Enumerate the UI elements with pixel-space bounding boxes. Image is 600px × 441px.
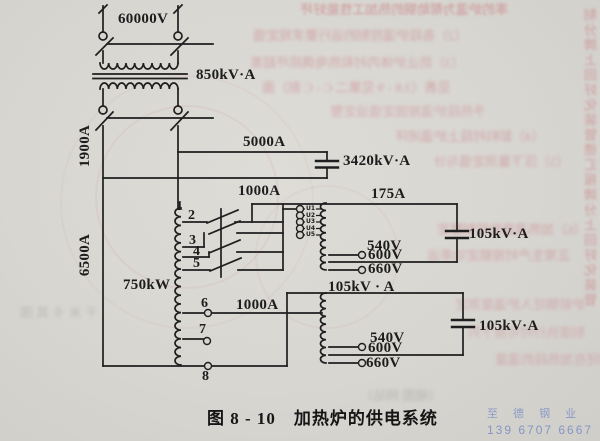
capacitor-bank-3420kva: [103, 152, 338, 178]
lv-disconnect-switches: [96, 106, 213, 130]
scanned-book-figure: 率的炉温为帮助钢的热加工性能好坏 （2）各段炉温控制的运行要求规定值 （3）防止…: [0, 0, 600, 441]
bus-lines: [103, 126, 178, 366]
label-current-1900a: 1900A: [78, 125, 94, 167]
capacitor-bank-105kva-2: [452, 293, 474, 355]
label-660v-upper: 660V: [368, 262, 403, 278]
power-supply-schematic: [0, 0, 600, 441]
label-current-1000a-upper: 1000A: [238, 184, 280, 200]
capacitor-bank-105kva-1: [446, 204, 468, 262]
label-terminal-u5: U5: [305, 232, 316, 238]
label-tap-5: 5: [193, 257, 200, 272]
label-660v-lower: 660V: [366, 356, 401, 372]
watermark: 至 德 钢 业 139 6707 6667: [487, 409, 593, 436]
furnace-transformer-2: [183, 293, 463, 367]
watermark-phone: 139 6707 6667: [487, 424, 593, 436]
label-current-175a: 175A: [371, 187, 406, 203]
label-capacitor-105kva-mid: 105kV · A: [328, 280, 395, 296]
label-source-voltage: 60000V: [118, 12, 168, 28]
label-capacitor-105kva-lower: 105kV·A: [479, 319, 539, 335]
label-power-750kw: 750kW: [123, 278, 170, 294]
autotransformer-750kw-winding: [175, 208, 181, 365]
figure-number: 图 8 - 10: [207, 409, 276, 428]
watermark-name: 至 德 钢 业: [487, 409, 593, 420]
bottom-return-wire: [103, 363, 287, 370]
label-tap-2: 2: [188, 209, 195, 224]
label-current-6500a: 6500A: [78, 234, 94, 276]
figure-title: 加热炉的供电系统: [294, 409, 438, 428]
label-tap-1: 1: [176, 200, 183, 215]
main-transformer-850kva: [93, 63, 187, 106]
label-current-1000a-lower: 1000A: [236, 298, 278, 314]
label-transformer-rating: 850kV·A: [196, 68, 256, 84]
label-current-5000a: 5000A: [243, 135, 285, 151]
label-tap-7: 7: [199, 323, 206, 338]
label-capacitor-105kva-upper: 105kV·A: [469, 227, 529, 243]
label-capacitor-3420kva: 3420kV·A: [343, 154, 410, 170]
label-tap-6: 6: [201, 297, 208, 312]
label-tap-8: 8: [202, 370, 209, 385]
figure-caption: 图 8 - 10 加热炉的供电系统: [207, 410, 438, 429]
